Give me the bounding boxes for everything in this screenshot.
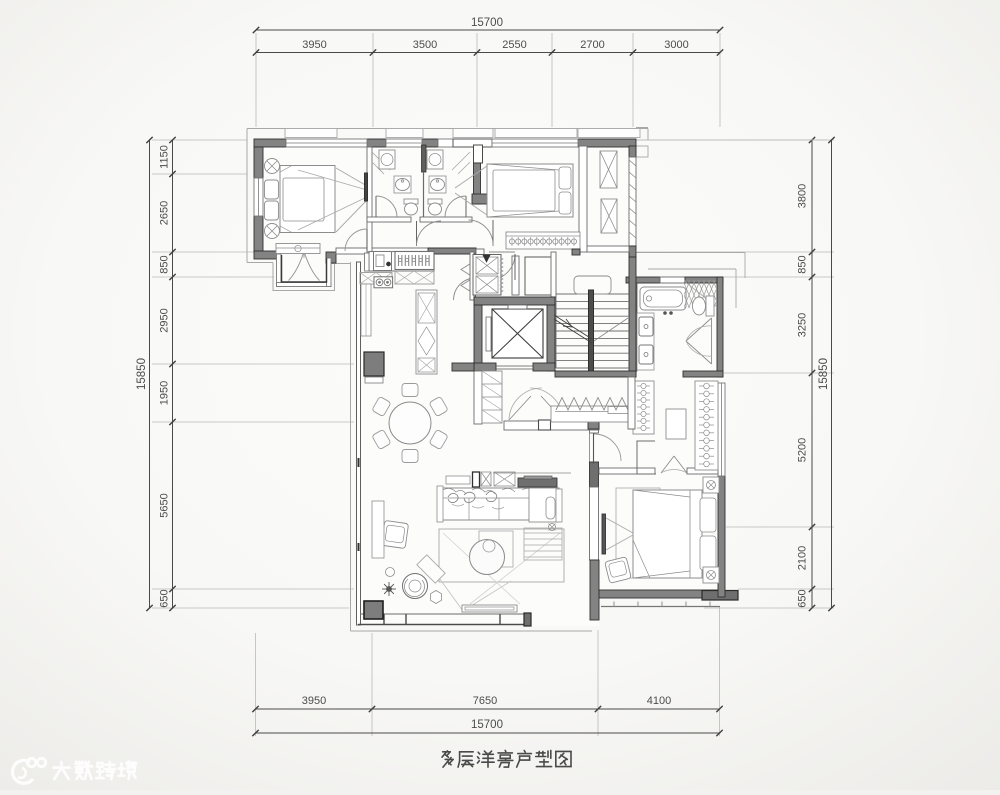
svg-text:15700: 15700 [471, 719, 503, 731]
svg-text:1950: 1950 [159, 381, 171, 405]
svg-text:15700: 15700 [471, 17, 503, 29]
svg-text:2650: 2650 [159, 201, 171, 225]
svg-text:650: 650 [797, 589, 809, 607]
svg-text:7650: 7650 [473, 695, 497, 707]
svg-text:3950: 3950 [302, 39, 326, 51]
svg-text:850: 850 [797, 255, 809, 273]
svg-text:3950: 3950 [302, 695, 326, 707]
svg-text:850: 850 [159, 255, 171, 273]
svg-text:3800: 3800 [797, 184, 809, 208]
svg-text:4100: 4100 [647, 695, 671, 707]
svg-text:15850: 15850 [818, 358, 830, 390]
svg-text:2550: 2550 [502, 39, 526, 51]
svg-text:2700: 2700 [580, 39, 604, 51]
svg-text:3250: 3250 [797, 313, 809, 337]
svg-text:2950: 2950 [159, 308, 171, 332]
svg-text:3000: 3000 [664, 39, 688, 51]
svg-text:15850: 15850 [136, 358, 148, 390]
svg-text:1150: 1150 [159, 145, 171, 169]
svg-text:3500: 3500 [413, 39, 437, 51]
svg-text:5200: 5200 [797, 438, 809, 462]
svg-text:650: 650 [159, 589, 171, 607]
svg-text:2100: 2100 [797, 546, 809, 570]
svg-text:5650: 5650 [159, 493, 171, 517]
